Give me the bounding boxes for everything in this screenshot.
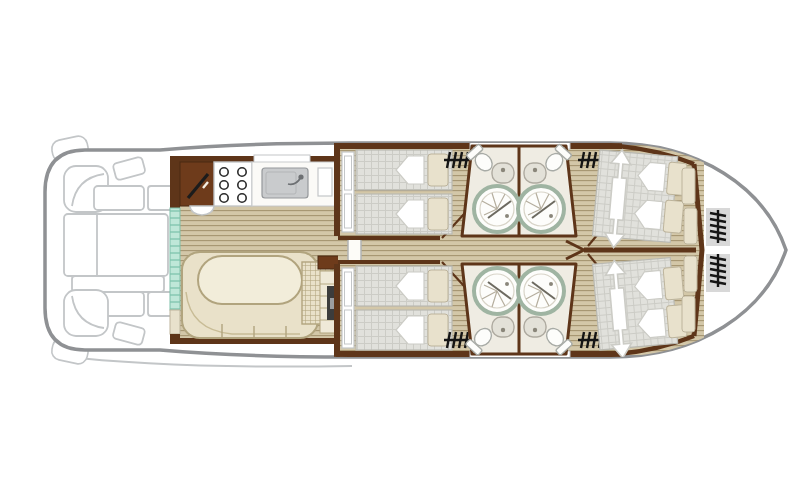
helm-console	[180, 162, 214, 206]
sliding-patio-door	[170, 208, 180, 310]
duvet	[663, 200, 684, 233]
boat-deck-plan	[0, 0, 810, 500]
divider-wall-top	[334, 143, 340, 236]
shower-icon	[474, 268, 520, 314]
bathrooms-starboard	[462, 264, 576, 356]
shower-icon	[474, 186, 520, 232]
deck-table-group	[64, 214, 168, 292]
counter-window	[318, 168, 332, 196]
corridor-wall-port	[338, 236, 440, 240]
dinette	[182, 252, 346, 338]
corner-seat-starboard	[64, 290, 108, 336]
entry-step	[170, 310, 180, 334]
washbasin-icon	[524, 163, 546, 183]
plan-drawing	[0, 0, 810, 500]
duvet	[428, 314, 448, 346]
shower-icon	[518, 268, 564, 314]
wardrobe	[342, 268, 354, 348]
dinette-table	[198, 256, 302, 304]
aft-bulkhead	[170, 156, 180, 210]
bathrooms-port	[462, 144, 576, 236]
washbasin-icon	[524, 317, 546, 337]
washbasin-icon	[492, 163, 514, 183]
shower-icon	[518, 186, 564, 232]
corridor-wall-starboard	[338, 260, 440, 264]
aft-bench-port	[94, 186, 144, 210]
divider-wall-bottom	[334, 264, 340, 357]
bow-center-wall	[584, 248, 696, 253]
wardrobe	[342, 152, 354, 232]
duvet	[428, 198, 448, 230]
duvet	[428, 270, 448, 302]
corridor-door	[348, 237, 361, 263]
duvet	[663, 267, 684, 300]
washbasin-icon	[492, 317, 514, 337]
